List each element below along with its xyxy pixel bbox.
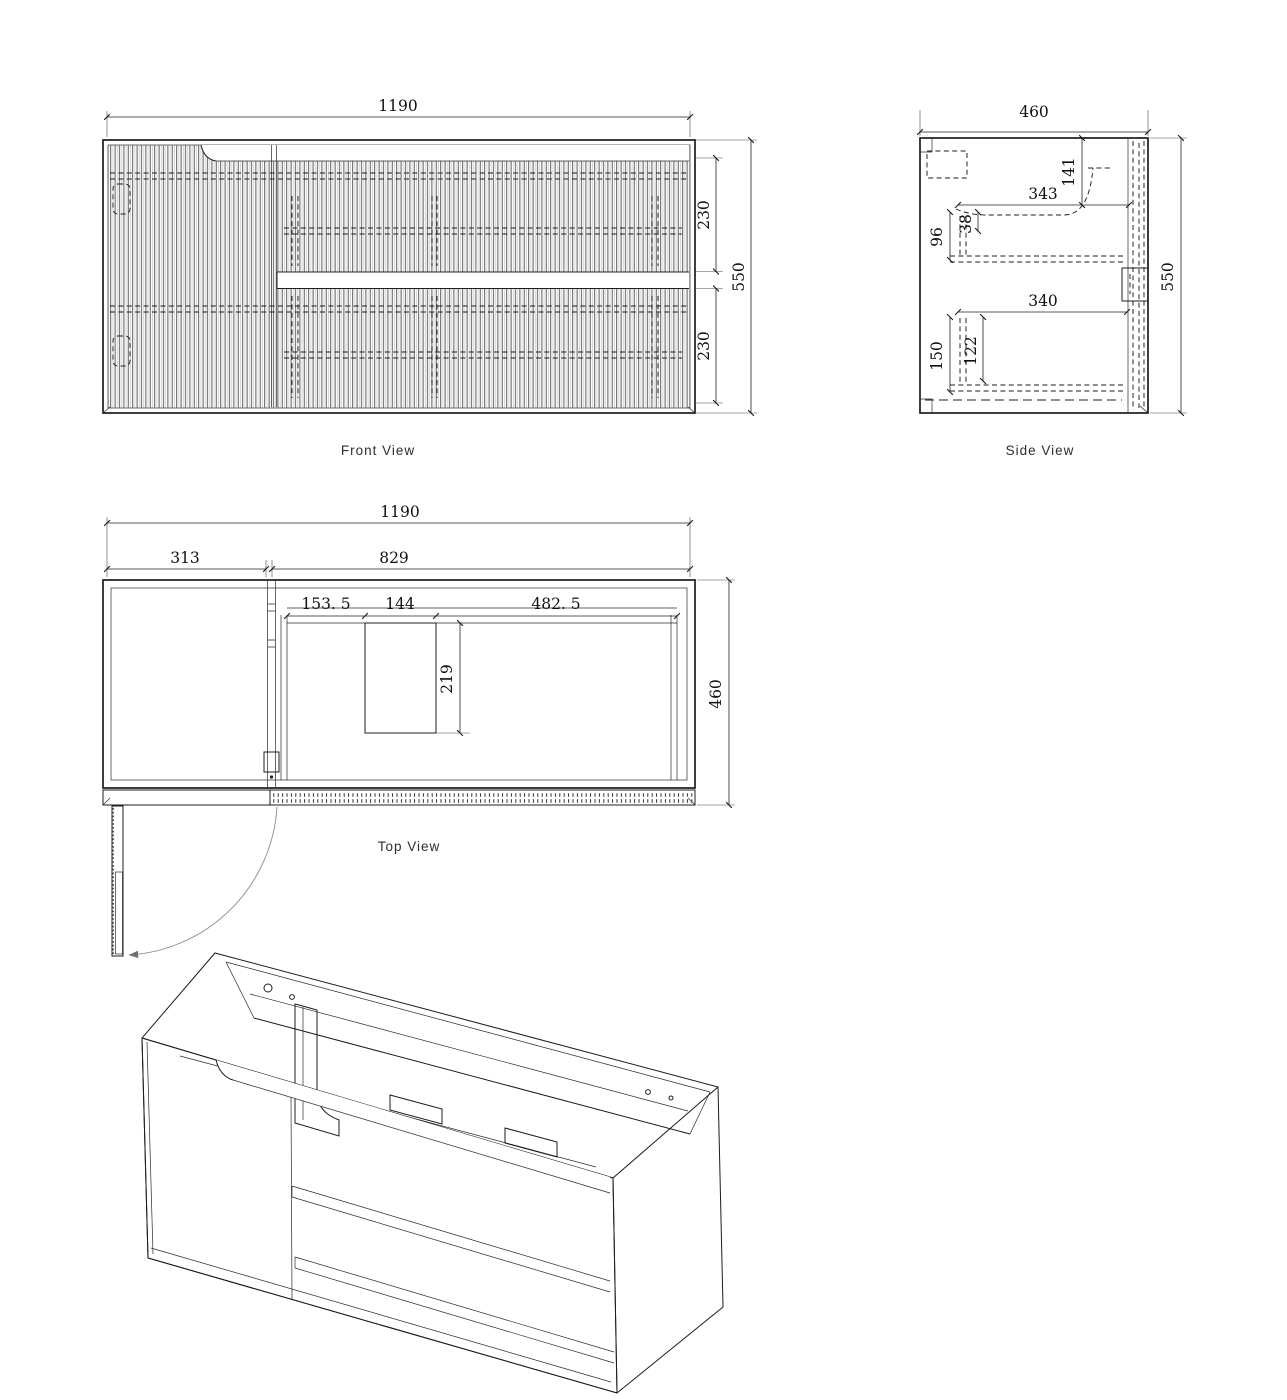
side-bottom-inner-dim: 122	[962, 336, 980, 366]
drawing-sheet: 1190 230 230 550 Front View 46	[0, 0, 1287, 1400]
iso-screw-hole	[646, 1090, 651, 1095]
top-view: 1190 313 829 153. 5 144 482. 5 219 460 T…	[103, 503, 735, 956]
top-drawers-width-dim: 829	[379, 549, 409, 567]
side-depth-dim: 460	[1019, 103, 1049, 121]
front-view: 1190 230 230 550 Front View	[103, 97, 757, 458]
front-view-label: Front View	[341, 443, 415, 458]
side-cabinet-outline	[920, 138, 1148, 413]
side-flute-edge	[1133, 141, 1144, 410]
top-width-dim: 1190	[380, 503, 419, 521]
side-basin-width-dim: 343	[1028, 185, 1058, 203]
iso-screw-hole	[290, 995, 295, 1000]
top-sink-cutout	[365, 623, 436, 733]
top-door-width-dim: 313	[170, 549, 200, 567]
side-rail-gap-dim: 38	[957, 214, 975, 234]
front-width-dim: 1190	[378, 97, 417, 115]
top-flute-strip	[271, 792, 693, 804]
iso-screw-hole	[264, 984, 272, 992]
front-drawer-gap	[277, 272, 689, 289]
top-offset-left-dim: 153. 5	[301, 595, 350, 613]
side-wall-rail	[927, 151, 967, 178]
technical-drawing: 1190 230 230 550 Front View 46	[0, 0, 1287, 1400]
side-view-label: Side View	[1006, 443, 1075, 458]
iso-screw-hole	[669, 1096, 673, 1100]
iso-divider	[295, 1004, 339, 1136]
top-depth-dim: 460	[707, 679, 725, 709]
top-offset-right-dim: 482. 5	[531, 595, 580, 613]
isometric-view	[142, 953, 723, 1393]
top-view-label: Top View	[378, 839, 441, 854]
top-cutout-depth-dim: 219	[438, 664, 456, 694]
side-height-dim: 550	[1159, 262, 1177, 292]
iso-carcass	[142, 953, 723, 1393]
side-basin-depth-dim: 141	[1060, 157, 1078, 187]
door-swing-arc	[129, 807, 277, 955]
front-drawer-bottom-dim: 230	[695, 331, 713, 361]
top-cutout-width-dim: 144	[385, 595, 415, 613]
side-shelf-width-dim: 340	[1028, 292, 1058, 310]
front-drawer-top-dim: 230	[695, 200, 713, 230]
side-bottom-offset-dim: 150	[928, 341, 946, 371]
front-height-dim: 550	[730, 262, 748, 292]
side-view: 460 343 141 96 38 340 150 122 550 Side V…	[920, 103, 1187, 458]
side-rail-offset-dim: 96	[928, 227, 946, 247]
